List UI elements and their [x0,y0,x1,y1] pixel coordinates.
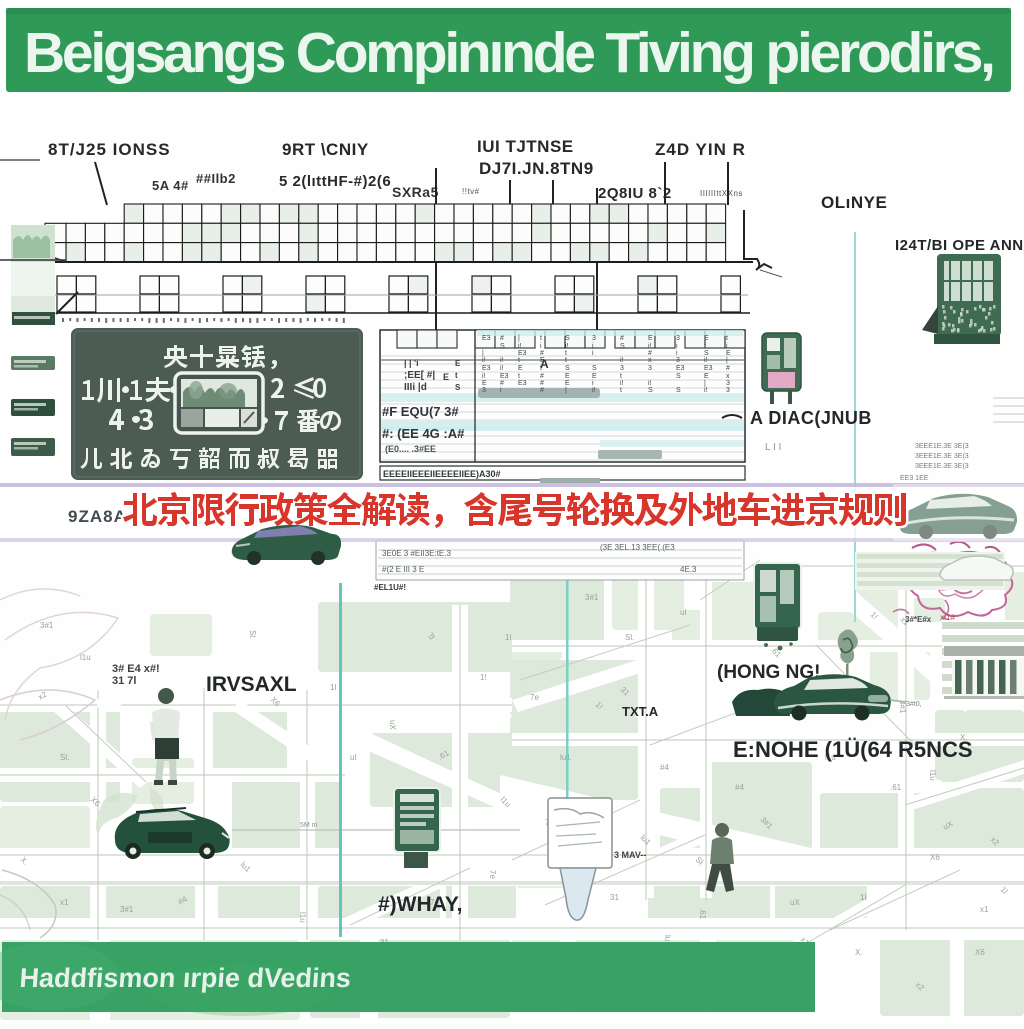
svg-text:3EEE1E.3E 3E(3: 3EEE1E.3E 3E(3 [915,453,969,460]
svg-text:#4: #4 [735,783,744,792]
svg-text:#)WHAY,: #)WHAY, [378,893,462,916]
svg-text:#: # [540,387,544,394]
svg-text:3EEE1E.3E 3E(3: 3EEE1E.3E 3E(3 [915,463,969,470]
svg-text:3: 3 [676,335,680,342]
svg-text:3#1: 3#1 [585,593,599,602]
svg-text:S: S [648,387,653,394]
svg-text:!!tv#: !!tv# [462,187,480,196]
svg-text:#4: #4 [660,763,669,772]
svg-text:uX: uX [388,720,397,730]
svg-text:Z4D YIN R: Z4D YIN R [655,140,746,159]
svg-text:TXT.A: TXT.A [622,704,659,719]
svg-text:3#t0,: 3#t0, [906,701,922,708]
svg-text:3 MAV--: 3 MAV-- [614,850,646,860]
svg-text:S: S [676,373,681,380]
svg-text:5A 4#: 5A 4# [152,178,189,193]
svg-text:ul: ul [680,608,686,617]
svg-text:S: S [455,383,461,392]
svg-text:A: A [540,357,549,371]
svg-text:t: t [565,350,567,357]
svg-text:i!: i! [592,387,596,394]
svg-text:Haddfismon ırpie dVedins: Haddfismon ırpie dVedins [19,963,352,993]
svg-text:3: 3 [726,387,730,394]
svg-text:i!: i! [704,357,708,364]
svg-text:.61: .61 [890,783,902,792]
svg-text:(3E 3EL.13 3EE(.(E3: (3E 3EL.13 3EE(.(E3 [600,543,675,552]
svg-text:X6: X6 [930,853,940,862]
svg-text:E: E [726,350,731,357]
svg-text:E:NOHE (1Ü(64 R5NCS: E:NOHE (1Ü(64 R5NCS [733,737,973,762]
svg-text:Beigsangs Compinınde Tiving pi: Beigsangs Compinınde Tiving pierodirs, [24,21,996,85]
svg-text:#: # [540,380,544,387]
svg-text:|: | [726,357,728,364]
svg-text:E3: E3 [482,365,491,372]
svg-text:E: E [443,372,449,382]
svg-text:I24T/BI OPE ANN: I24T/BI OPE ANN [895,237,1024,254]
svg-text:3#*E#x: 3#*E#x [905,615,932,624]
svg-text:t: t [726,335,728,342]
svg-text:Sl.: Sl. [625,633,634,642]
svg-text:i!: i! [565,343,569,350]
svg-text:X.: X. [855,948,863,957]
svg-text:i!: i! [518,343,522,350]
svg-text:E: E [455,359,461,368]
svg-text:.61: .61 [698,908,707,920]
svg-text:x: x [726,373,730,380]
svg-text:3: 3 [482,387,486,394]
svg-text:#: # [500,335,504,342]
svg-text:S: S [676,387,681,394]
svg-text:L I I: L I I [765,442,781,453]
svg-text:E: E [565,373,570,380]
svg-text:3: 3 [592,335,596,342]
svg-text:E: E [518,365,523,372]
svg-text:SXRa5: SXRa5 [392,184,439,200]
svg-text:i!: i! [648,343,652,350]
svg-text:9ZA8A: 9ZA8A [68,507,127,526]
svg-text:#: # [726,365,730,372]
svg-text:4E.3: 4E.3 [680,565,697,574]
svg-text:| | 'i: | | 'i [404,358,419,368]
svg-text:i!: i! [704,387,708,394]
svg-text:t: t [620,373,622,380]
svg-text:E3: E3 [500,373,509,380]
svg-text:Sl.: Sl. [60,753,69,762]
svg-text:2Q8IU 8`2: 2Q8IU 8`2 [598,185,672,202]
svg-text:8T/J25 IONSS: 8T/J25 IONSS [48,140,171,159]
svg-text:t: t [704,343,706,350]
svg-text:3: 3 [620,365,624,372]
svg-text:EE3 1EE: EE3 1EE [900,475,929,482]
svg-text:OLıNYE: OLıNYE [821,193,887,212]
svg-text:1!: 1! [480,673,487,682]
svg-text:#: # [620,335,624,342]
svg-text:|: | [704,380,706,387]
svg-text:1l: 1l [330,683,336,692]
svg-text:E: E [648,335,653,342]
svg-text:3#1: 3#1 [120,905,134,914]
svg-text:i!: i! [620,357,624,364]
svg-text:X6: X6 [975,948,985,957]
svg-text:IIIi |d: IIIi |d [404,382,427,393]
svg-text:l1u: l1u [928,770,937,781]
svg-text:x1: x1 [60,898,69,907]
svg-text:ul: ul [350,753,356,762]
svg-text:EEEEIIEEEIIEEEEIIEE)A30#: EEEEIIEEEIIEEEEIIEE)A30# [383,469,501,479]
svg-text:#(2 E III 3 E: #(2 E III 3 E [382,565,424,574]
svg-text:|: | [518,335,520,342]
svg-text:3: 3 [676,357,680,364]
svg-text:7e: 7e [488,870,497,879]
svg-text:7e: 7e [530,693,539,702]
svg-text:E3: E3 [704,365,713,372]
svg-text:Sl.: Sl. [248,630,257,639]
svg-text:E: E [592,373,597,380]
svg-text:E3: E3 [482,335,491,342]
svg-text:3: 3 [726,380,730,387]
svg-text:DJ7I.JN.8TN9: DJ7I.JN.8TN9 [479,159,594,178]
svg-text:t: t [565,357,567,364]
svg-text:IRVSAXL: IRVSAXL [206,673,297,696]
svg-text:E: E [704,373,709,380]
svg-text:uX: uX [790,898,800,907]
svg-text:lu1: lu1 [560,753,571,762]
svg-text:E: E [482,380,487,387]
svg-text:i!: i! [500,365,504,372]
svg-text:|: | [482,350,484,357]
svg-text:A DIAC(JNUB: A DIAC(JNUB [750,408,872,428]
svg-text:#F EQU(7 3#: #F EQU(7 3# [382,404,459,419]
svg-text:#: # [648,350,652,357]
svg-text:S: S [565,335,570,342]
svg-text:#EL1U#!: #EL1U#! [374,583,406,592]
svg-text:3E0E 3 #EII3E:tE.3: 3E0E 3 #EII3E:tE.3 [382,549,451,558]
svg-text:9RT \CNIY: 9RT \CNIY [282,140,369,159]
svg-text:i!: i! [620,380,624,387]
svg-text:#: # [500,380,504,387]
svg-text:t: t [540,335,542,342]
svg-text:i!: i! [500,357,504,364]
svg-text:|: | [565,387,567,394]
svg-text:#: # [540,350,544,357]
svg-text:S: S [704,350,709,357]
svg-text:t: t [620,387,622,394]
svg-text:3EEE1E.3E 3E(3: 3EEE1E.3E 3E(3 [915,443,969,450]
svg-text:S: S [500,343,505,350]
svg-text:(E0.... .3#EE: (E0.... .3#EE [385,444,436,454]
svg-text:31 7l: 31 7l [112,675,136,687]
svg-text:1l: 1l [505,633,511,642]
svg-text:E: E [704,335,709,342]
svg-text:3# E4 x#!: 3# E4 x#! [112,663,160,675]
svg-text:S: S [565,365,570,372]
svg-text:5 2(lıttHF-#)2(6: 5 2(lıttHF-#)2(6 [279,173,391,190]
svg-text:E3: E3 [518,380,527,387]
svg-text:31: 31 [610,893,619,902]
svg-text:i!: i! [482,373,486,380]
svg-text:;EE[ #|: ;EE[ #| [404,370,435,381]
svg-text:l1u: l1u [298,912,307,923]
svg-text:l1u: l1u [80,653,91,662]
svg-text:IUI TJTNSE: IUI TJTNSE [477,137,574,156]
svg-text:i!: i! [482,357,486,364]
svg-text:t: t [455,371,458,380]
svg-text:x: x [648,357,652,364]
svg-text:IIIIIIttXXns: IIIIIIttXXns [700,189,743,198]
svg-text:#: # [540,373,544,380]
svg-text:1l: 1l [860,893,866,902]
svg-text:t: t [518,357,520,364]
svg-text:E3: E3 [676,365,685,372]
svg-text:##Ilb2: ##Ilb2 [196,171,236,186]
svg-text:S: S [592,365,597,372]
svg-text:3#1: 3#1 [40,621,54,630]
svg-text:t: t [518,373,520,380]
svg-text:#: (EE 4G :A#: #: (EE 4G :A# [382,426,465,441]
svg-text:S: S [620,343,625,350]
svg-text:3: 3 [648,365,652,372]
svg-text:5M m: 5M m [300,822,318,829]
svg-text:i!: i! [648,380,652,387]
svg-text:E3: E3 [518,350,527,357]
svg-text:x1: x1 [980,905,989,914]
svg-text:E: E [565,380,570,387]
